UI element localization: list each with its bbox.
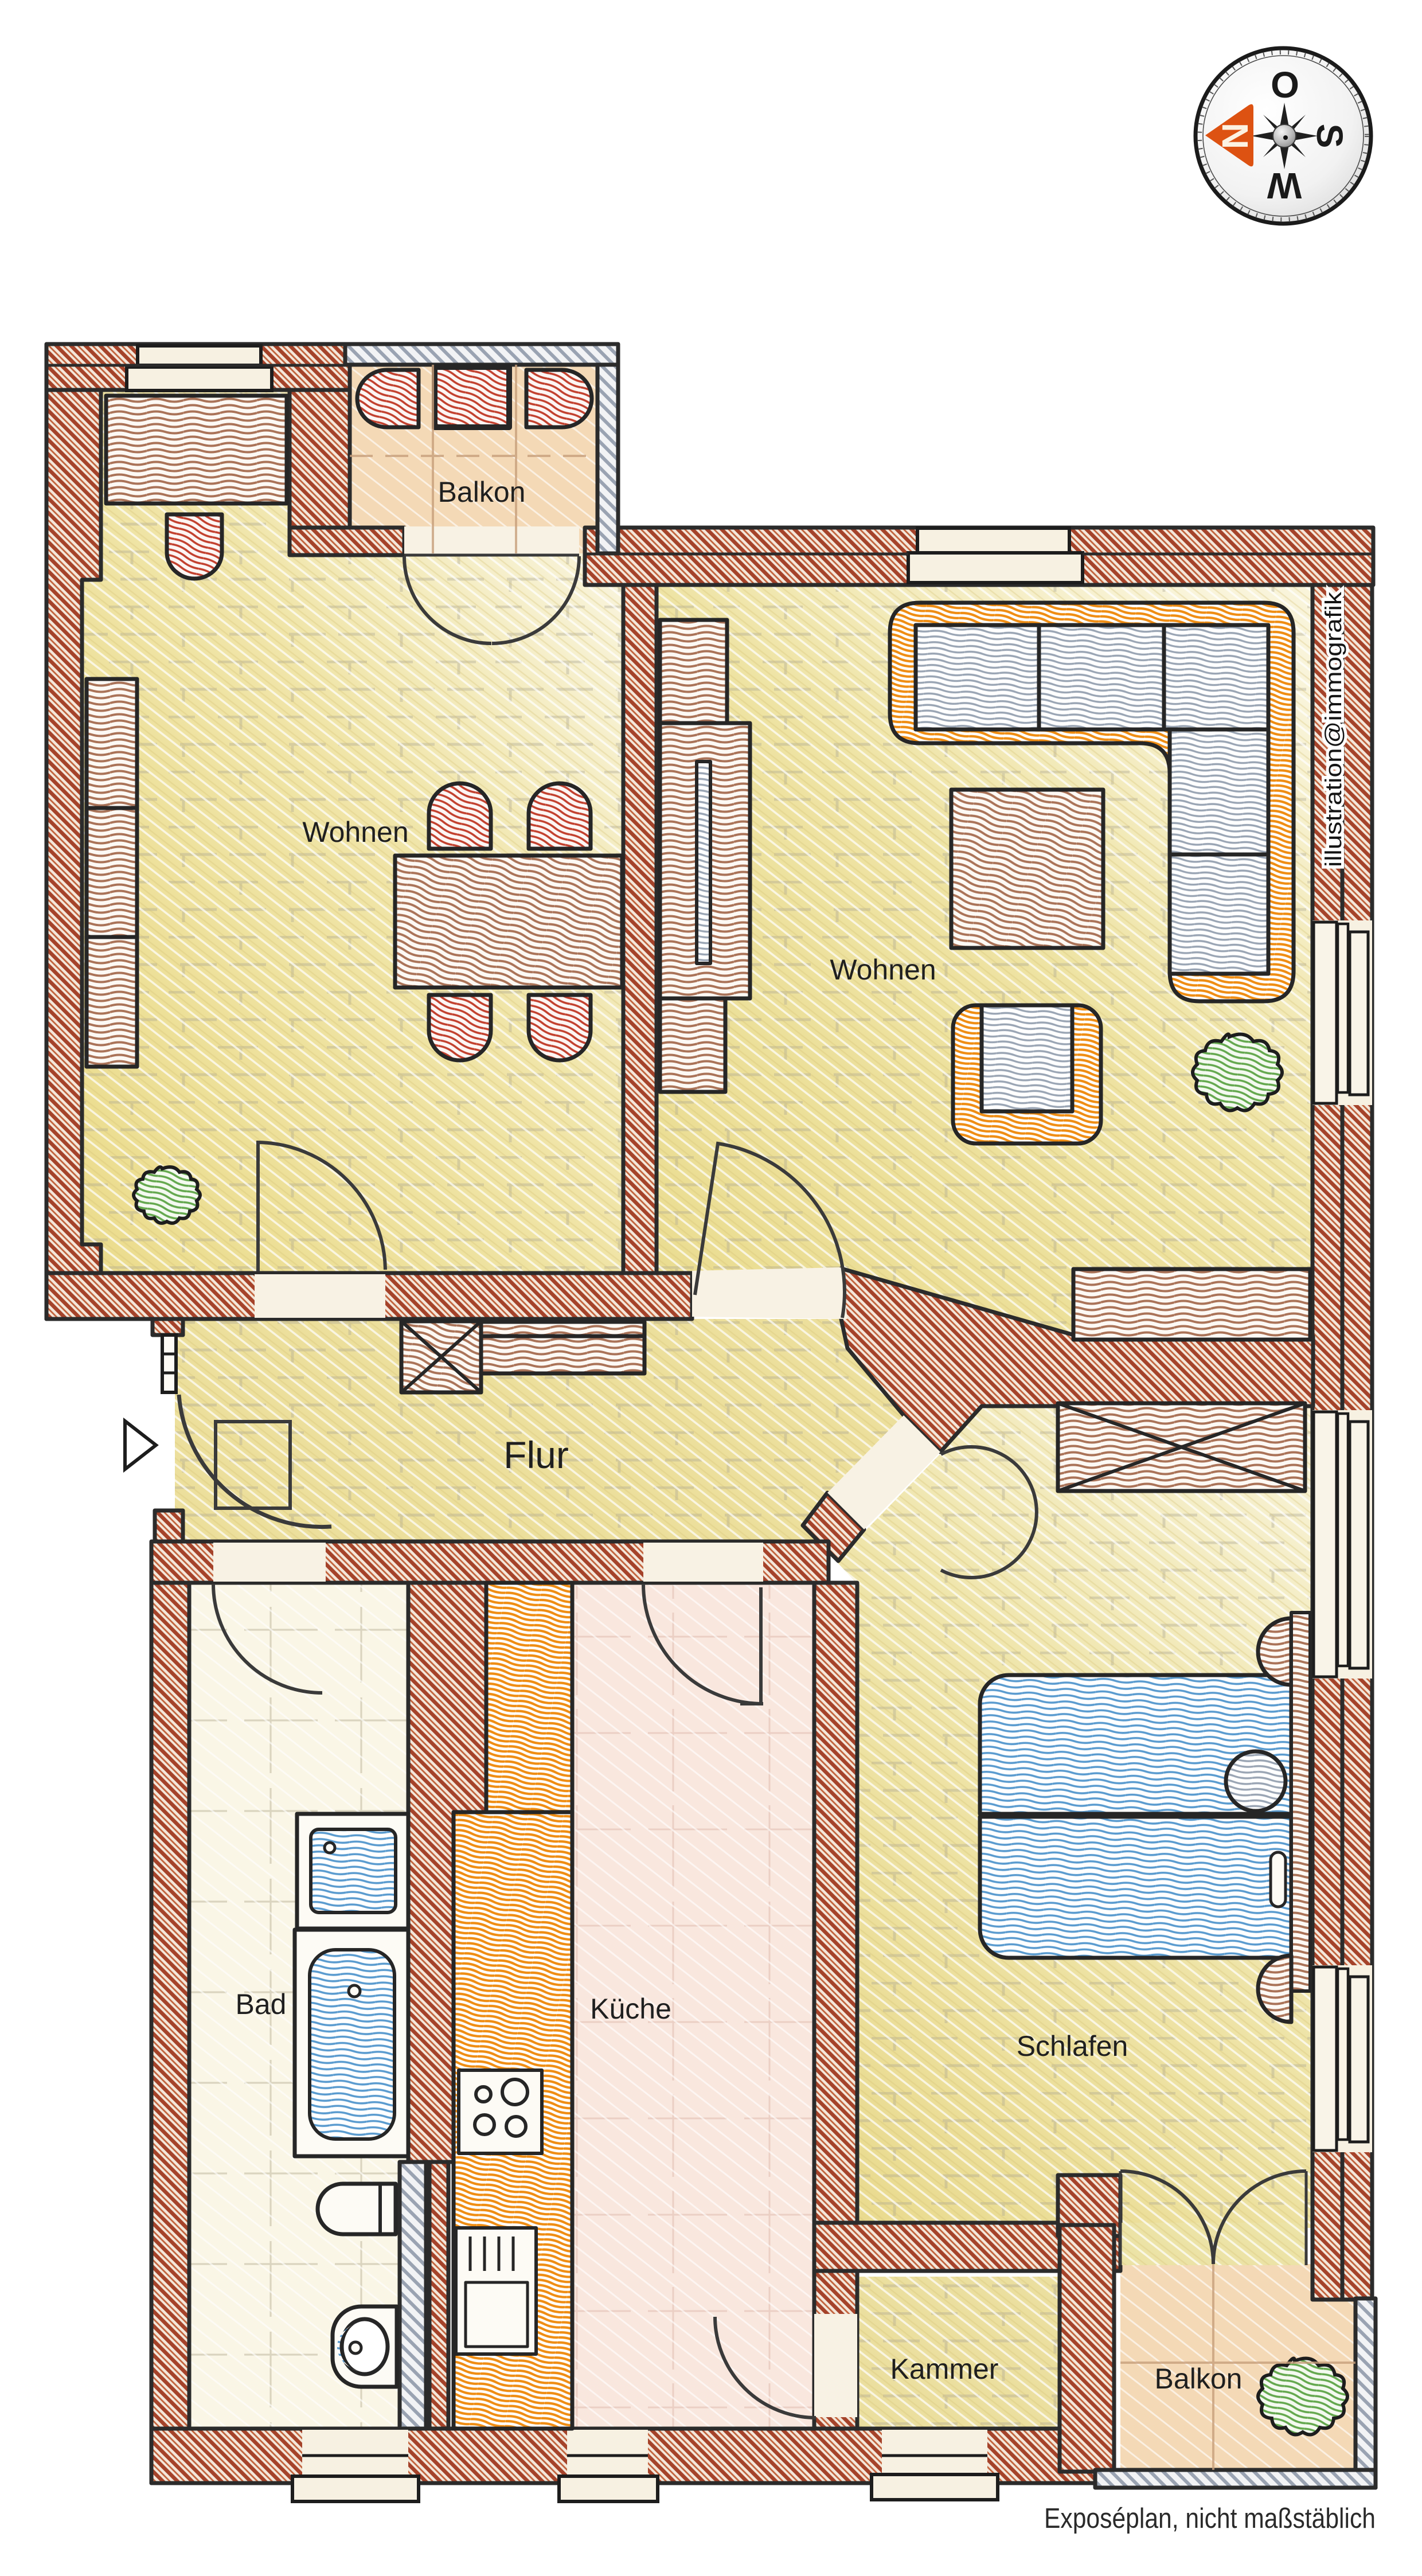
svg-text:S: S [1309, 124, 1350, 149]
svg-text:Wohnen: Wohnen [830, 954, 936, 986]
svg-text:O: O [1271, 64, 1299, 106]
svg-text:N: N [1214, 123, 1256, 149]
svg-text:Küche: Küche [590, 1993, 671, 2025]
svg-text:Balkon: Balkon [438, 476, 526, 508]
svg-text:Bad: Bad [236, 1988, 287, 2020]
svg-text:illustration@immografik: illustration@immografik [1321, 591, 1346, 867]
svg-text:Schlafen: Schlafen [1017, 2030, 1128, 2062]
svg-text:W: W [1267, 165, 1302, 206]
svg-text:Kammer: Kammer [890, 2353, 999, 2385]
svg-text:Wohnen: Wohnen [302, 816, 408, 848]
svg-text:Balkon: Balkon [1155, 2363, 1243, 2395]
svg-text:Exposéplan, nicht maßstäblich: Exposéplan, nicht maßstäblich [1044, 2503, 1376, 2534]
svg-text:Flur: Flur [503, 1434, 569, 1476]
